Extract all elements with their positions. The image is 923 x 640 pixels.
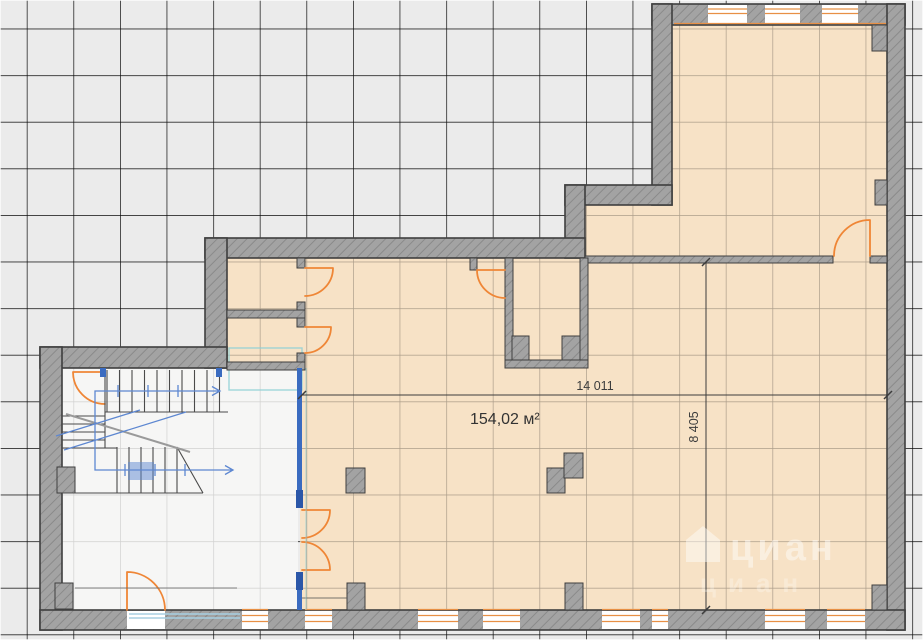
window (602, 611, 640, 629)
wall-segment (870, 256, 887, 263)
wall-segment (580, 258, 588, 368)
wall-segment (40, 347, 227, 368)
column (547, 468, 565, 493)
wall-segment (297, 258, 305, 268)
wall-segment (887, 4, 905, 630)
floor-plan-canvas: 14 011 8 405 154,02 м² циан циан (0, 0, 923, 640)
window (242, 611, 268, 629)
window (483, 611, 520, 629)
window (652, 611, 668, 629)
pilaster (57, 467, 75, 493)
pilaster (347, 583, 365, 610)
window (765, 5, 800, 24)
shaft-block (512, 336, 529, 360)
watermark-brand: циан (730, 527, 837, 569)
column (564, 453, 583, 478)
dimension-label: 14 011 (576, 379, 613, 393)
partition-jamb (296, 490, 303, 508)
shaft-block (562, 336, 580, 360)
floor-plan-svg: 14 011 8 405 154,02 м² циан циан (0, 0, 923, 640)
wall-segment (227, 362, 305, 370)
window (765, 611, 805, 629)
wall-segment (297, 353, 305, 362)
window (305, 611, 332, 629)
area-label: 154,02 м² (470, 411, 540, 428)
door-jamb-mark (100, 368, 106, 377)
window (827, 611, 865, 629)
window (708, 5, 747, 24)
pilaster (872, 585, 887, 610)
wall-segment (470, 258, 477, 270)
partition-jamb (296, 572, 303, 590)
wall-segment (227, 310, 305, 318)
column (346, 468, 365, 493)
wall-segment (205, 238, 585, 258)
door-jamb-mark (216, 368, 222, 377)
wall-segment (652, 4, 672, 205)
pilaster (565, 583, 583, 610)
dimension-label: 8 405 (687, 411, 701, 442)
watermark-brand-secondary: циан (700, 568, 810, 598)
stair-highlight (128, 462, 154, 480)
pilaster (55, 583, 73, 609)
window (418, 611, 458, 629)
pilaster (875, 180, 887, 205)
pilaster (872, 25, 887, 51)
wall-segment (505, 360, 588, 368)
window (822, 5, 858, 24)
